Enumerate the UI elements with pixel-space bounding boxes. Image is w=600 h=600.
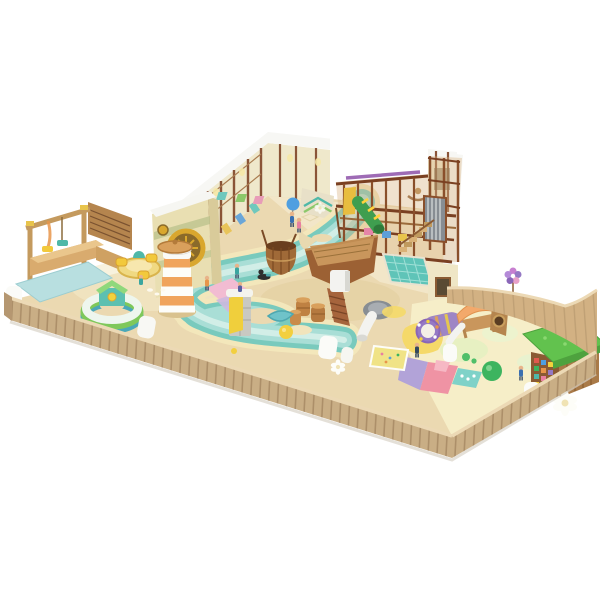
blue-pad [382, 231, 391, 238]
climb-tower [226, 289, 253, 336]
roller-slide [424, 196, 446, 242]
ball-yellow [279, 325, 293, 339]
ball-yellow-small [231, 348, 237, 354]
ball-green [482, 361, 502, 381]
carousel [116, 251, 160, 279]
lighthouse [158, 240, 196, 319]
kid-figure [238, 282, 242, 292]
porthole [494, 316, 505, 327]
right-back-wall-a [268, 143, 330, 201]
confetti-mat [370, 346, 408, 370]
ball-pit [383, 254, 432, 286]
fence-end-cap [4, 292, 12, 321]
slide-exit [357, 335, 368, 342]
soft-block-white [317, 335, 338, 360]
yellow-splat-small [382, 306, 406, 318]
soft-block-white [443, 344, 457, 362]
playground-render [0, 0, 600, 600]
ball-green-small [462, 353, 470, 361]
playground-scene [0, 0, 600, 600]
kid-figure [139, 275, 143, 285]
ball-green-small [471, 358, 476, 363]
